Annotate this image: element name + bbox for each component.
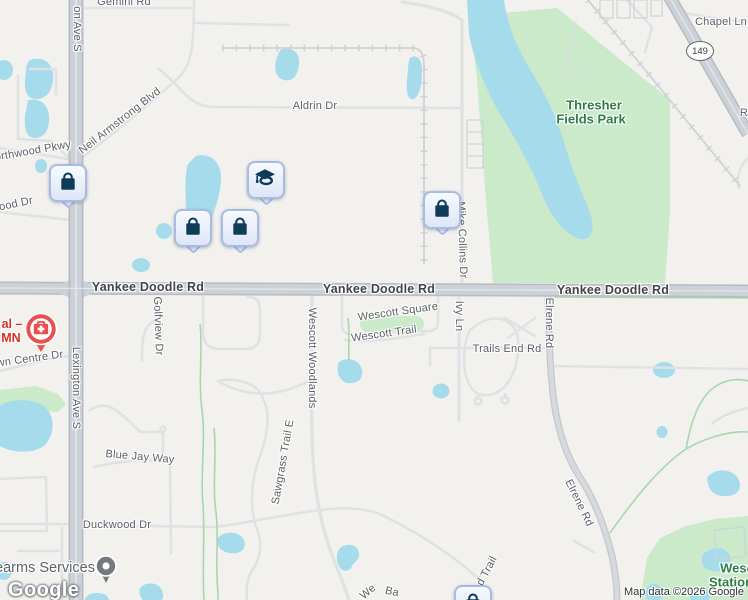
shopping-bag-icon [462, 591, 484, 600]
place-marker-poi-dot[interactable] [92, 553, 120, 592]
shopping-bag-icon [431, 197, 453, 219]
graduation-cap-icon [253, 166, 277, 190]
poi-dot-icon [92, 553, 120, 587]
shopping-bag-icon [57, 170, 79, 192]
shopping-bag-icon [229, 215, 251, 237]
shopping-bag-icon [182, 215, 204, 237]
map-data-attribution: Map data ©2026 Google [624, 586, 744, 598]
place-marker-hospital[interactable] [20, 309, 62, 362]
map-canvas[interactable]: 149 Gemini Rdon Ave SNeil Armstrong Blvd… [0, 0, 748, 600]
google-logo[interactable]: Google [8, 579, 79, 600]
route-149-shield: 149 [686, 41, 714, 61]
map-base [0, 0, 748, 600]
hospital-icon [20, 309, 62, 357]
